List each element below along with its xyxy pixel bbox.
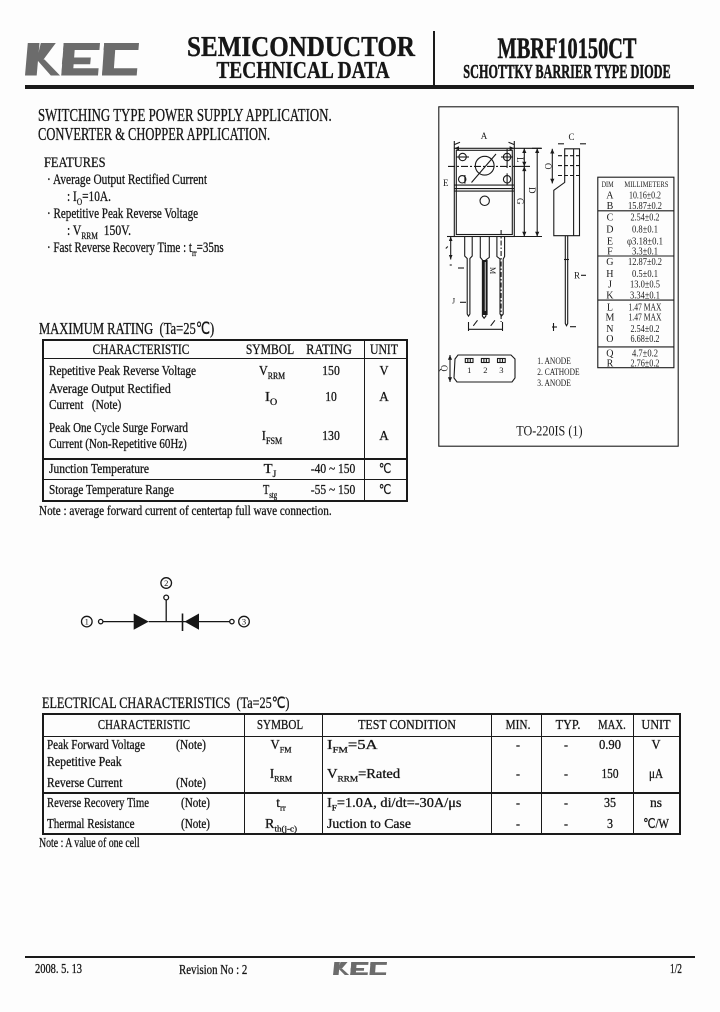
svg-text:M: M xyxy=(605,313,614,324)
svg-text:2. CATHODE: 2. CATHODE xyxy=(537,368,579,378)
svg-text:DIM: DIM xyxy=(602,180,614,189)
svg-text:J: J xyxy=(452,297,455,306)
svg-text:G: G xyxy=(606,257,613,268)
svg-text:3: 3 xyxy=(242,617,246,627)
svg-text:B: B xyxy=(607,201,614,212)
svg-text:1: 1 xyxy=(467,365,471,375)
svg-text:1. ANODE: 1. ANODE xyxy=(537,357,571,367)
svg-text:2: 2 xyxy=(483,365,487,375)
svg-text:0.8±0.1: 0.8±0.1 xyxy=(632,225,658,236)
svg-text:L: L xyxy=(515,157,525,163)
svg-text:13.0±0.5: 13.0±0.5 xyxy=(630,279,660,290)
svg-text:2.54±0.2: 2.54±0.2 xyxy=(631,324,660,335)
svg-text:1: 1 xyxy=(85,617,89,627)
svg-text:G: G xyxy=(515,198,525,205)
svg-text:3: 3 xyxy=(499,365,503,375)
svg-text:H: H xyxy=(606,269,613,280)
svg-text:6.68±0.2: 6.68±0.2 xyxy=(631,334,660,345)
svg-text:MILLIMETERS: MILLIMETERS xyxy=(624,180,668,189)
svg-text:J: J xyxy=(608,279,612,290)
svg-text:2: 2 xyxy=(164,578,168,588)
svg-text:E: E xyxy=(443,178,449,188)
svg-text:3. ANODE: 3. ANODE xyxy=(537,379,571,389)
svg-text:2.54±0.2: 2.54±0.2 xyxy=(631,213,660,224)
svg-text:15.87±0.2: 15.87±0.2 xyxy=(628,201,662,212)
svg-text:2.76±0.2: 2.76±0.2 xyxy=(631,358,660,369)
svg-text:D: D xyxy=(527,187,537,194)
svg-text:10.16±0.2: 10.16±0.2 xyxy=(629,190,661,201)
svg-text:TO-220IS (1): TO-220IS (1) xyxy=(516,424,582,440)
svg-text:R: R xyxy=(574,270,580,280)
svg-text:K: K xyxy=(606,291,614,302)
svg-text:N: N xyxy=(606,324,613,335)
svg-text:A: A xyxy=(606,190,614,201)
svg-text:C: C xyxy=(607,213,614,224)
svg-text:M: M xyxy=(488,267,497,274)
svg-text:12.87±0.2: 12.87±0.2 xyxy=(628,257,662,268)
svg-text:D: D xyxy=(606,225,613,236)
svg-text:0.5±0.1: 0.5±0.1 xyxy=(632,269,658,280)
svg-text:3.34±0.1: 3.34±0.1 xyxy=(630,291,660,302)
svg-text:Q: Q xyxy=(439,365,449,372)
svg-text:R: R xyxy=(607,358,614,369)
svg-text:C: C xyxy=(568,132,574,142)
svg-text:O: O xyxy=(606,334,613,345)
svg-text:O: O xyxy=(543,163,553,170)
svg-text:1.47 MAX: 1.47 MAX xyxy=(629,313,663,324)
svg-text:A: A xyxy=(481,131,488,141)
